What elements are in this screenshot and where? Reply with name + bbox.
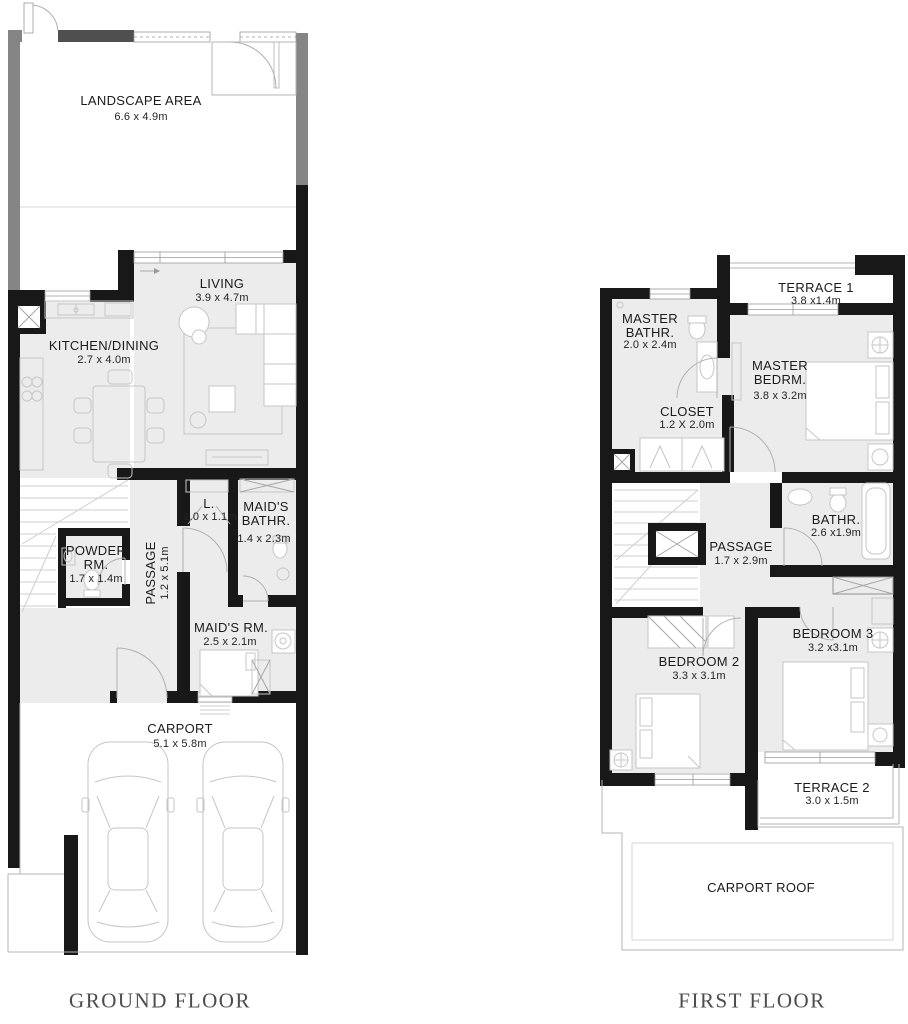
- room-dims-master-bathroom: 2.0 x 2.4m: [623, 339, 676, 351]
- room-label-terrace-1: TERRACE 1: [778, 281, 854, 295]
- room-label-bedroom-2: BEDROOM 2: [659, 655, 740, 669]
- room-label-carport: CARPORT: [147, 722, 212, 736]
- room-dims-terrace-2: 3.0 x 1.5m: [805, 795, 858, 807]
- room-dims-living: 3.9 x 4.7m: [195, 292, 248, 304]
- ground-floor-plan: [8, 3, 308, 955]
- room-dims-bathroom: 2.6 x1.9m: [811, 527, 861, 539]
- closet-wardrobe: [640, 438, 724, 471]
- room-label-carport-roof: CARPORT ROOF: [707, 881, 815, 895]
- room-label-living: LIVING: [200, 277, 244, 291]
- ground-trellis-bands: [134, 32, 296, 42]
- room-dims-passage-first: 1.7 x 2.9m: [714, 555, 767, 567]
- room-dims-laundry-closet: 1.0 x 1.1m: [183, 511, 236, 523]
- room-label-maids-bathroom: MAID'S BATHR.: [233, 500, 299, 528]
- ground-floor-title: GROUND FLOOR: [69, 989, 251, 1014]
- carport: [8, 703, 296, 952]
- room-dims-carport: 5.1 x 5.8m: [153, 738, 206, 750]
- first-floor-title: FIRST FLOOR: [678, 989, 825, 1014]
- room-label-closet: CLOSET: [660, 405, 714, 419]
- room-label-terrace-2: TERRACE 2: [794, 781, 870, 795]
- room-label-master-bedroom: MASTER BEDRM.: [741, 359, 819, 387]
- room-label-bedroom-3: BEDROOM 3: [793, 627, 874, 641]
- room-dims-closet: 1.2 X 2.0m: [659, 419, 714, 431]
- room-label-passage-ground: PASSAGE: [144, 541, 158, 604]
- room-dims-passage-ground: 1.2 x 5.1m: [159, 546, 171, 599]
- entry-gate: [24, 3, 58, 33]
- floor-plan-canvas: LANDSCAPE AREA 6.6 x 4.9m LIVING 3.9 x 4…: [0, 0, 908, 1024]
- room-label-maids-room: MAID'S RM.: [194, 621, 268, 635]
- room-label-kitchen-dining: KITCHEN/DINING: [49, 339, 159, 353]
- room-dims-master-bedroom: 3.8 x 3.2m: [753, 390, 806, 402]
- room-dims-terrace-1: 3.8 x1.4m: [791, 295, 841, 307]
- room-dims-maids-room: 2.5 x 2.1m: [203, 636, 256, 648]
- room-label-powder-room: POWDER RM.: [59, 544, 133, 572]
- room-label-landscape-area: LANDSCAPE AREA: [80, 94, 201, 108]
- room-dims-landscape-area: 6.6 x 4.9m: [114, 111, 167, 123]
- room-dims-powder-room: 1.7 x 1.4m: [69, 573, 122, 585]
- room-dims-kitchen-dining: 2.7 x 4.0m: [77, 354, 130, 366]
- room-label-master-bathroom: MASTER BATHR.: [614, 312, 686, 340]
- room-label-laundry-closet: L.: [203, 497, 214, 511]
- ground-shaft-box: [12, 300, 46, 334]
- entry-vestibule: [212, 42, 296, 95]
- room-dims-maids-bathroom: 1.4 x 2.3m: [237, 533, 290, 545]
- room-dims-bedroom-3: 3.2 x3.1m: [808, 642, 858, 654]
- floor-plan-drawing: [0, 0, 908, 1024]
- room-label-passage-first: PASSAGE: [709, 540, 772, 554]
- room-dims-bedroom-2: 3.3 x 3.1m: [672, 670, 725, 682]
- room-label-bathroom: BATHR.: [812, 513, 861, 527]
